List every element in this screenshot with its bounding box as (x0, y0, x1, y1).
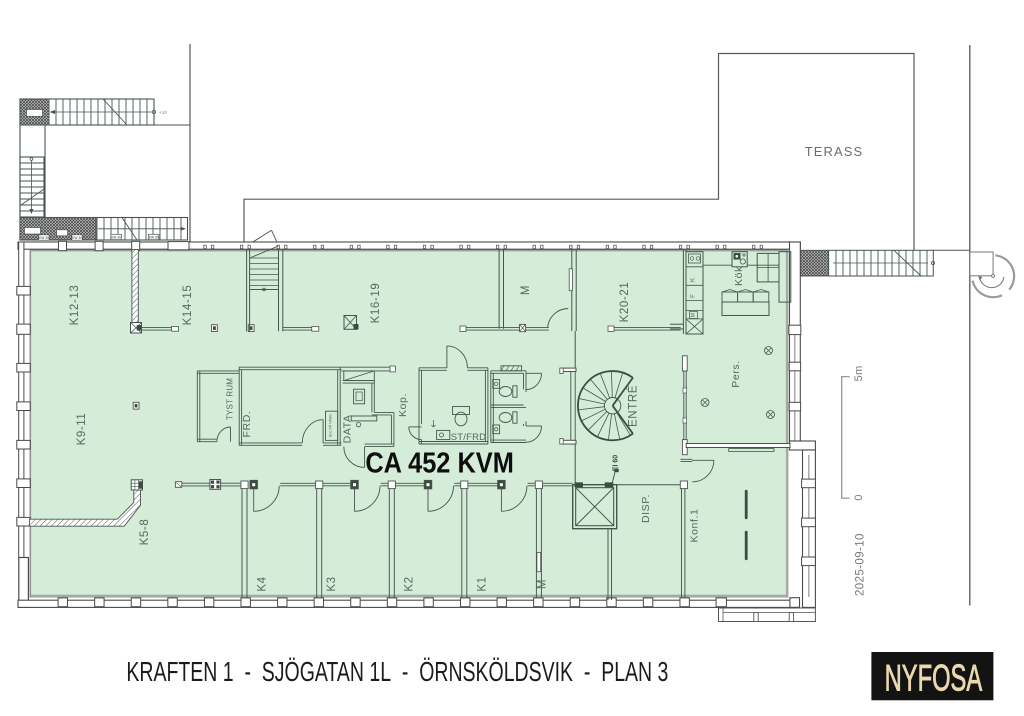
svg-text:NYFOSA: NYFOSA (885, 657, 983, 699)
svg-text:M: M (537, 579, 549, 589)
svg-text:K12-13: K12-13 (69, 285, 81, 326)
svg-text:+10: +10 (159, 110, 168, 115)
svg-text:Kök: Kök (733, 266, 745, 286)
svg-text:CA 452 KVM: CA 452 KVM (365, 448, 514, 480)
svg-text:K20-21: K20-21 (619, 282, 631, 323)
svg-text:K4: K4 (256, 576, 268, 591)
svg-text:K1: K1 (477, 576, 489, 591)
svg-text:K3: K3 (326, 576, 338, 591)
svg-text:K14-15: K14-15 (182, 285, 194, 326)
svg-text:EW 30: EW 30 (39, 236, 49, 240)
svg-text:EW 30: EW 30 (111, 236, 121, 240)
svg-text:TERASS: TERASS (805, 144, 864, 159)
svg-text:Kop.: Kop. (397, 393, 409, 417)
svg-text:K16-19: K16-19 (370, 283, 382, 324)
svg-text:ENTRÉ: ENTRÉ (627, 385, 640, 427)
svg-text:5m: 5m (853, 365, 865, 381)
svg-text:TYST RUM: TYST RUM (226, 378, 235, 420)
svg-text:DISP.: DISP. (640, 494, 652, 523)
svg-text:FRD.: FRD. (241, 411, 253, 438)
svg-text:EW 30: EW 30 (149, 236, 159, 240)
svg-text:EW 30: EW 30 (72, 236, 82, 240)
svg-text:F: F (691, 294, 697, 298)
svg-text:M: M (691, 313, 697, 317)
svg-text:M: M (520, 285, 532, 295)
svg-text:0: 0 (853, 494, 865, 500)
svg-text:K2: K2 (404, 576, 416, 591)
svg-text:DATA: DATA (342, 415, 354, 444)
svg-text:Konf.1: Konf.1 (689, 509, 701, 543)
svg-text:2025-09-10: 2025-09-10 (855, 533, 867, 596)
svg-text:Pers.: Pers. (730, 360, 742, 388)
svg-text:K9-11: K9-11 (76, 413, 88, 446)
svg-text:K: K (691, 278, 697, 282)
svg-text:ELC PÅ VÄGG: ELC PÅ VÄGG (328, 414, 333, 437)
svg-text:K5-8: K5-8 (139, 519, 151, 546)
svg-text:KRAFTEN 1 - SJÖGATAN 1L -: KRAFTEN 1 - SJÖGATAN 1L - ÖRNSKÖLDSVIK -… (126, 656, 668, 687)
svg-text:EI 60: EI 60 (613, 455, 620, 471)
svg-text:ST/FRD: ST/FRD (451, 432, 487, 443)
